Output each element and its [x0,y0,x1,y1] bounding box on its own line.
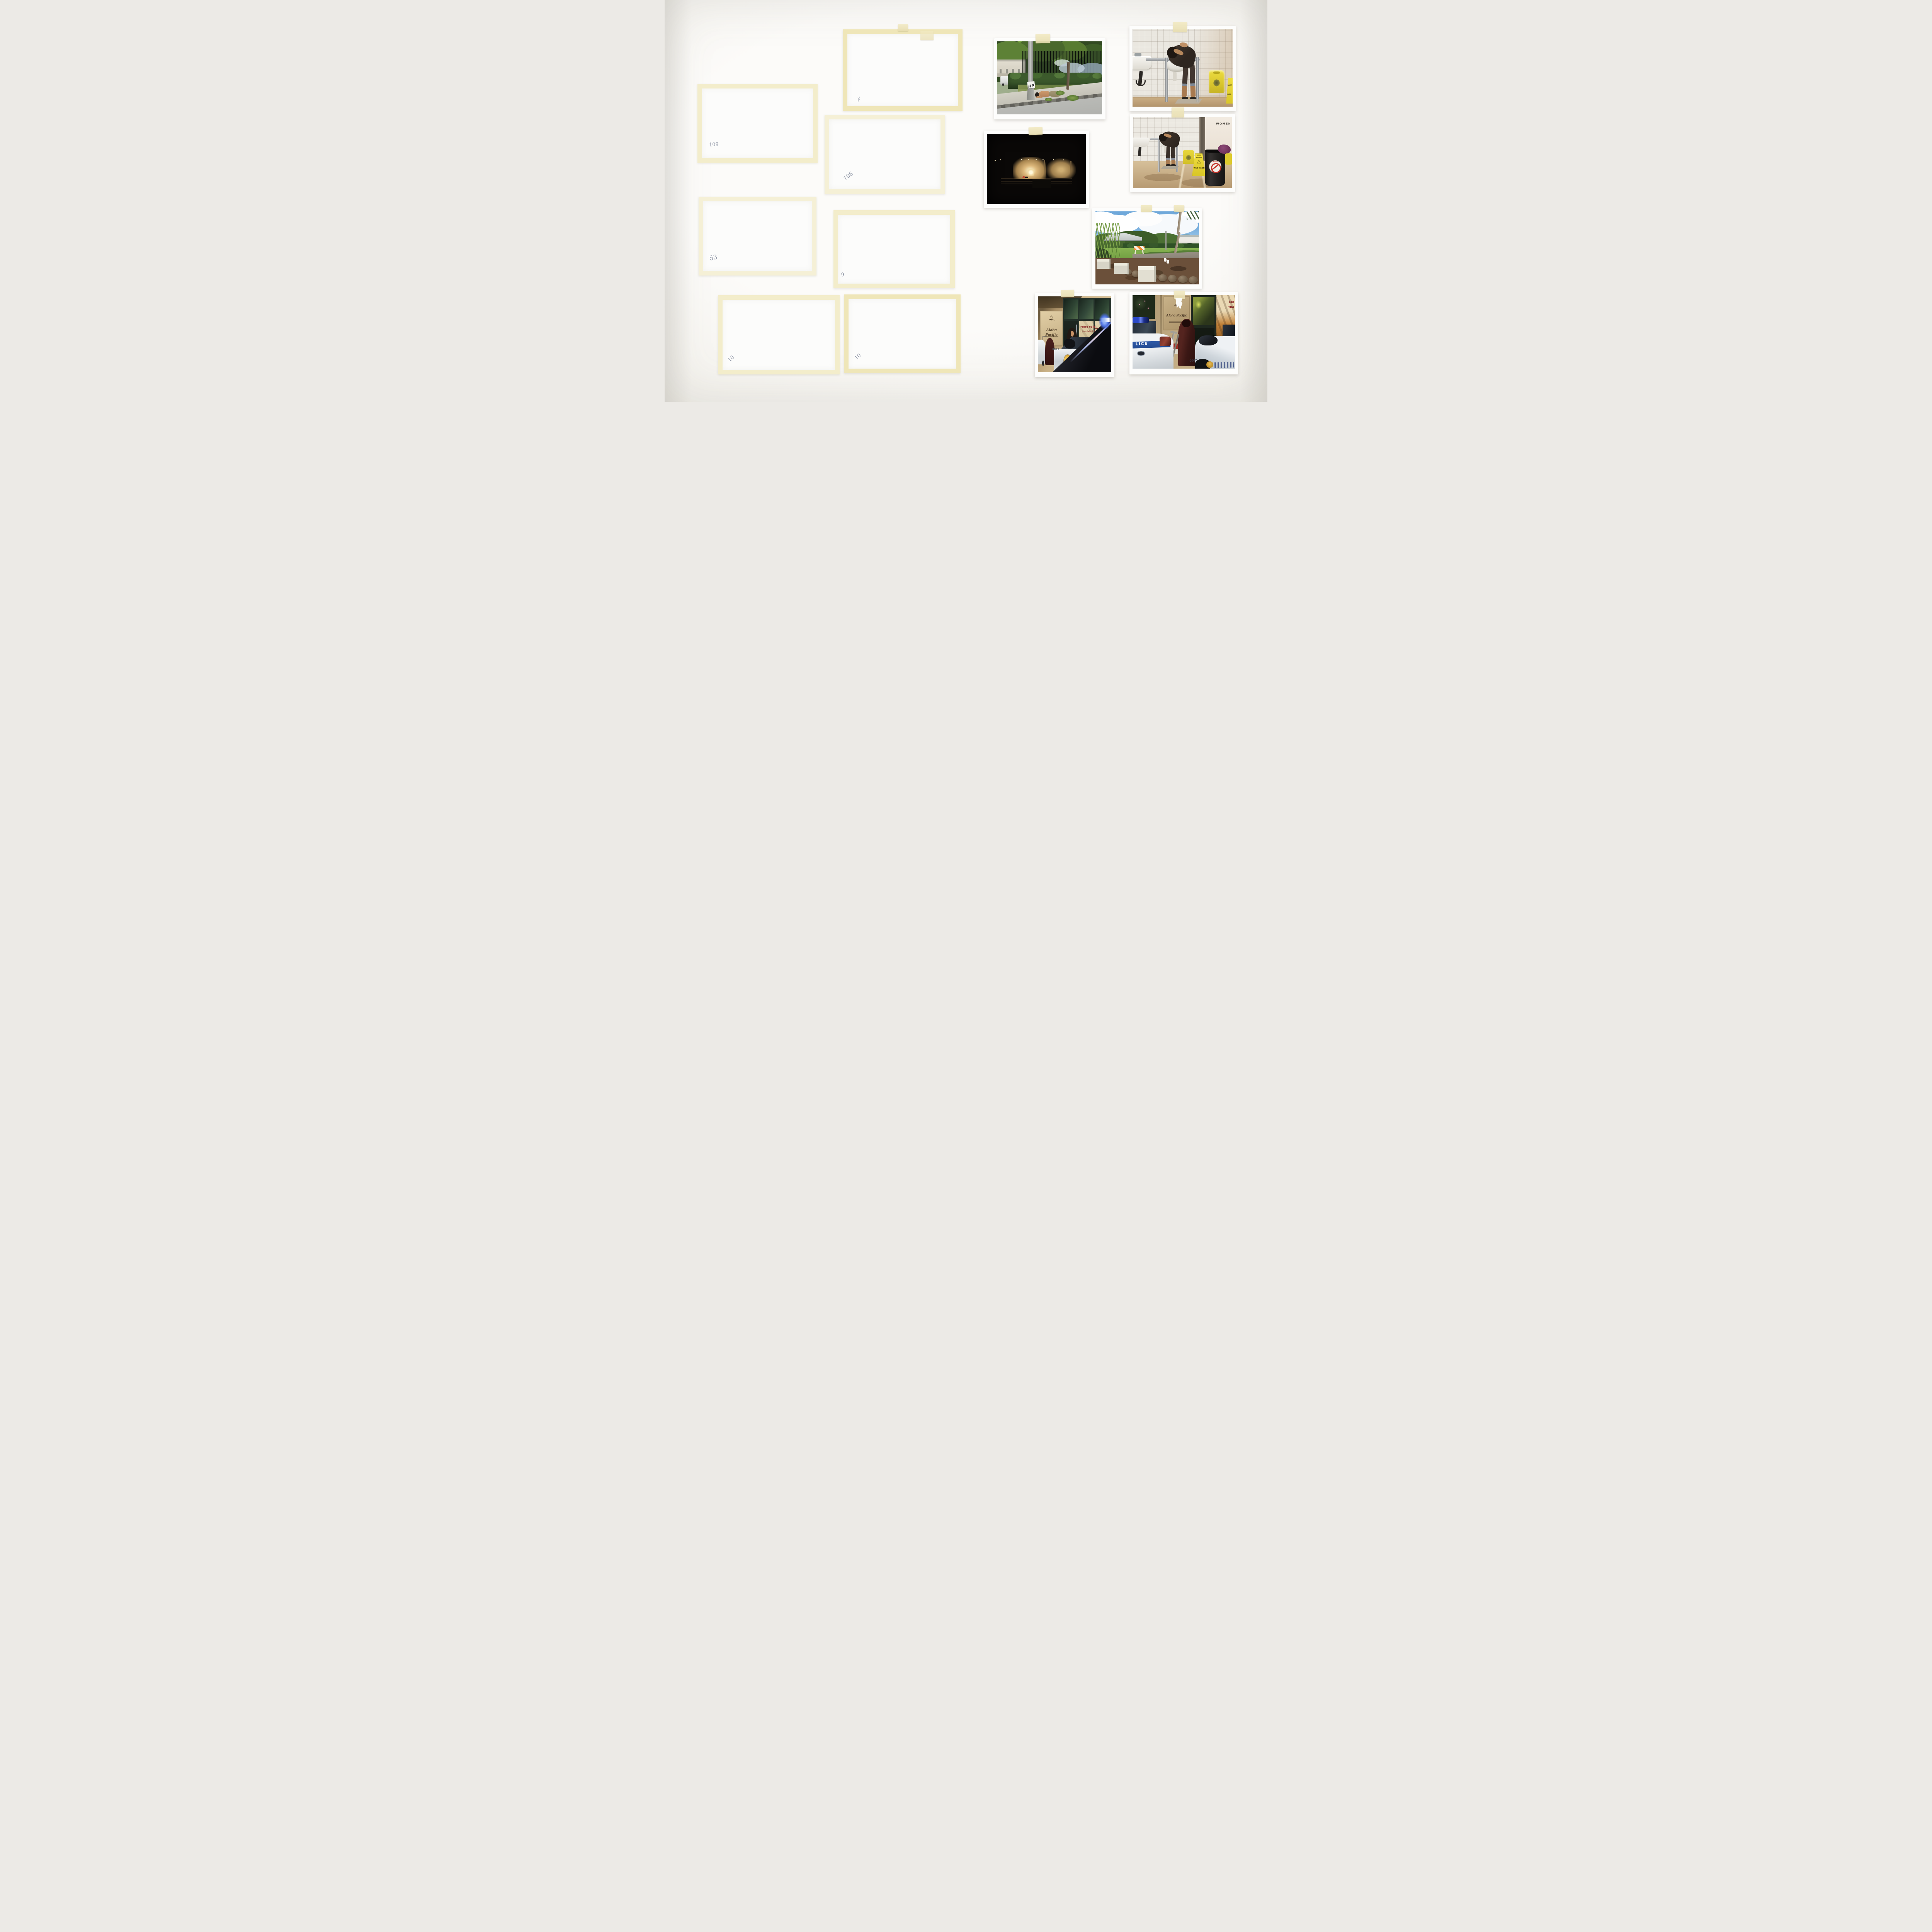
blank-card-7: 10 [844,294,961,373]
drain-pipe [1138,147,1141,156]
white-car [1038,340,1045,365]
women-sign-text: WOMEN [1216,123,1231,126]
photo-police-rear: Aloha Pacific Mo tha LICE [1133,295,1235,369]
concrete-cube [1114,263,1129,274]
no-smoking-sticker: Mahalo [1209,160,1221,173]
masking-tape [1172,107,1184,117]
masking-tape [898,24,908,31]
flip-flop [1182,97,1188,99]
person-leg [1171,146,1175,166]
photo-police-storefront: Aloha Pacific More to be thankful for. W… [1038,296,1111,372]
photo-restroom-wide: WOMEN CAUTION ⚠ WET FLOOR [1133,117,1232,188]
photo-print-restroom-close: CAUT WET [1129,26,1236,111]
floor-mat [1161,166,1179,169]
flip-flop [1171,164,1176,166]
blank-card-5: 106 [825,115,945,194]
yellow-plastic-bag [1183,150,1195,164]
masking-tape [1174,291,1185,299]
masking-tape [1061,290,1074,298]
poster-text-fragment: tha [1228,306,1234,309]
flip-flop [1166,164,1171,166]
photo-print-police-rear: Aloha Pacific Mo tha LICE [1129,292,1238,374]
blue-light-streak [1100,318,1111,322]
rail-post [1196,57,1199,102]
ford-emblem-icon [1137,351,1145,355]
masking-tape [1141,205,1152,212]
hood-number: 1000 [1189,359,1197,362]
floor-mat [1175,99,1202,104]
utility-pole [1165,231,1167,250]
concrete-cube [1097,259,1111,269]
person-leg [1166,146,1170,166]
yellow-plastic-bag [1209,70,1225,93]
barricade-stripes [1134,246,1145,250]
blank-card-2: 53 [699,197,816,276]
masking-tape [1029,127,1043,135]
wall-shadow-left [665,0,692,402]
sink-left [1133,138,1149,147]
blank-card-1: 109 [697,84,818,163]
sign-handle [1197,155,1201,156]
palm-fronds [1187,211,1199,219]
inverted-lettering-band [1214,362,1234,368]
caution-text: CAUT [1227,85,1232,86]
white-bird [1167,260,1169,264]
bench-silhouette [1032,180,1051,188]
drain-trap [1136,80,1146,86]
handwritten-mark: ✗ [856,96,862,103]
masking-tape [920,31,934,40]
ceiling-lights [993,157,1078,163]
tree-branches [1133,295,1155,319]
women-sign: WOMEN [1216,123,1232,128]
poster-text-fragment: Mo [1229,301,1234,304]
photo-street: HP [997,41,1102,114]
photo-print-street: HP [994,38,1105,119]
border-rock [1158,274,1167,282]
person-leg [1182,65,1189,97]
photo-print-restroom-wide: WOMEN CAUTION ⚠ WET FLOOR [1130,114,1235,192]
pole-graffiti-sticker: HP [1027,81,1035,88]
flip-flop [1190,97,1196,99]
caution-text: WET [1227,94,1231,95]
hood-number: 1000 [1052,348,1059,350]
handwritten-label: 106 [842,171,854,182]
door-reflection [1193,297,1214,325]
blank-card-3: 10 [718,295,840,374]
tail-light [1160,337,1171,346]
yellow-bag [1225,153,1232,165]
window-reflection [1079,299,1093,319]
handwritten-label: 9 [841,272,845,277]
wet-floor-text: WET FLOOR [1194,167,1206,169]
masking-tape [1036,34,1050,44]
brand-text: Aloha Pacific [1040,328,1063,337]
grass-tuft [1064,94,1081,102]
handwritten-label: 53 [709,254,718,262]
police-text-fragment: LICE [1136,342,1148,346]
photo-print-police-front: Aloha Pacific More to be thankful for. W… [1035,293,1114,377]
brand-text: Aloha Pacific [1163,314,1190,318]
mahalo-text: Mahalo [1213,161,1218,162]
person-leg [1190,65,1196,97]
light-source [1027,169,1034,176]
wet-floor-sign: CAUT WET [1226,78,1233,104]
sink-pipe [1173,72,1177,81]
masking-tape [1174,205,1184,212]
caution-text: CAUTION [1195,157,1202,158]
masking-tape [1173,22,1187,32]
lying-figure-dark [1025,177,1028,178]
blank-card-6: 9 [833,210,955,288]
wall-shadow-right [1240,0,1267,402]
side-mirror [1064,339,1075,349]
blank-card-4: ✗ [843,29,963,111]
palm-boat-logo-icon [1047,313,1056,325]
grass-tuft [1043,97,1054,102]
faucet [1134,53,1141,56]
photo-print-park [1092,208,1202,289]
photo-restroom-close: CAUT WET [1133,29,1233,107]
concrete-cube [1138,266,1156,282]
side-mirror [1199,335,1218,346]
rail-post [1158,138,1160,172]
windshield-sliver [1223,325,1235,336]
handwritten-label: 10 [854,353,862,361]
photo-park [1095,211,1199,284]
window-reflection [1064,299,1078,319]
photo-print-night [984,131,1089,208]
handwritten-label: 109 [709,142,719,147]
border-rock [1178,276,1187,283]
pavilion-column [1070,161,1071,178]
white-bird [1164,258,1167,262]
police-light-bar [1133,317,1149,323]
handwritten-label: 10 [727,355,735,363]
photo-night-pavilion [987,134,1086,204]
print-wall: 109 53 10 ✗ 106 9 10 [665,0,1267,402]
graffiti-text: HP [1028,84,1034,89]
pavilion-column [1044,160,1045,179]
